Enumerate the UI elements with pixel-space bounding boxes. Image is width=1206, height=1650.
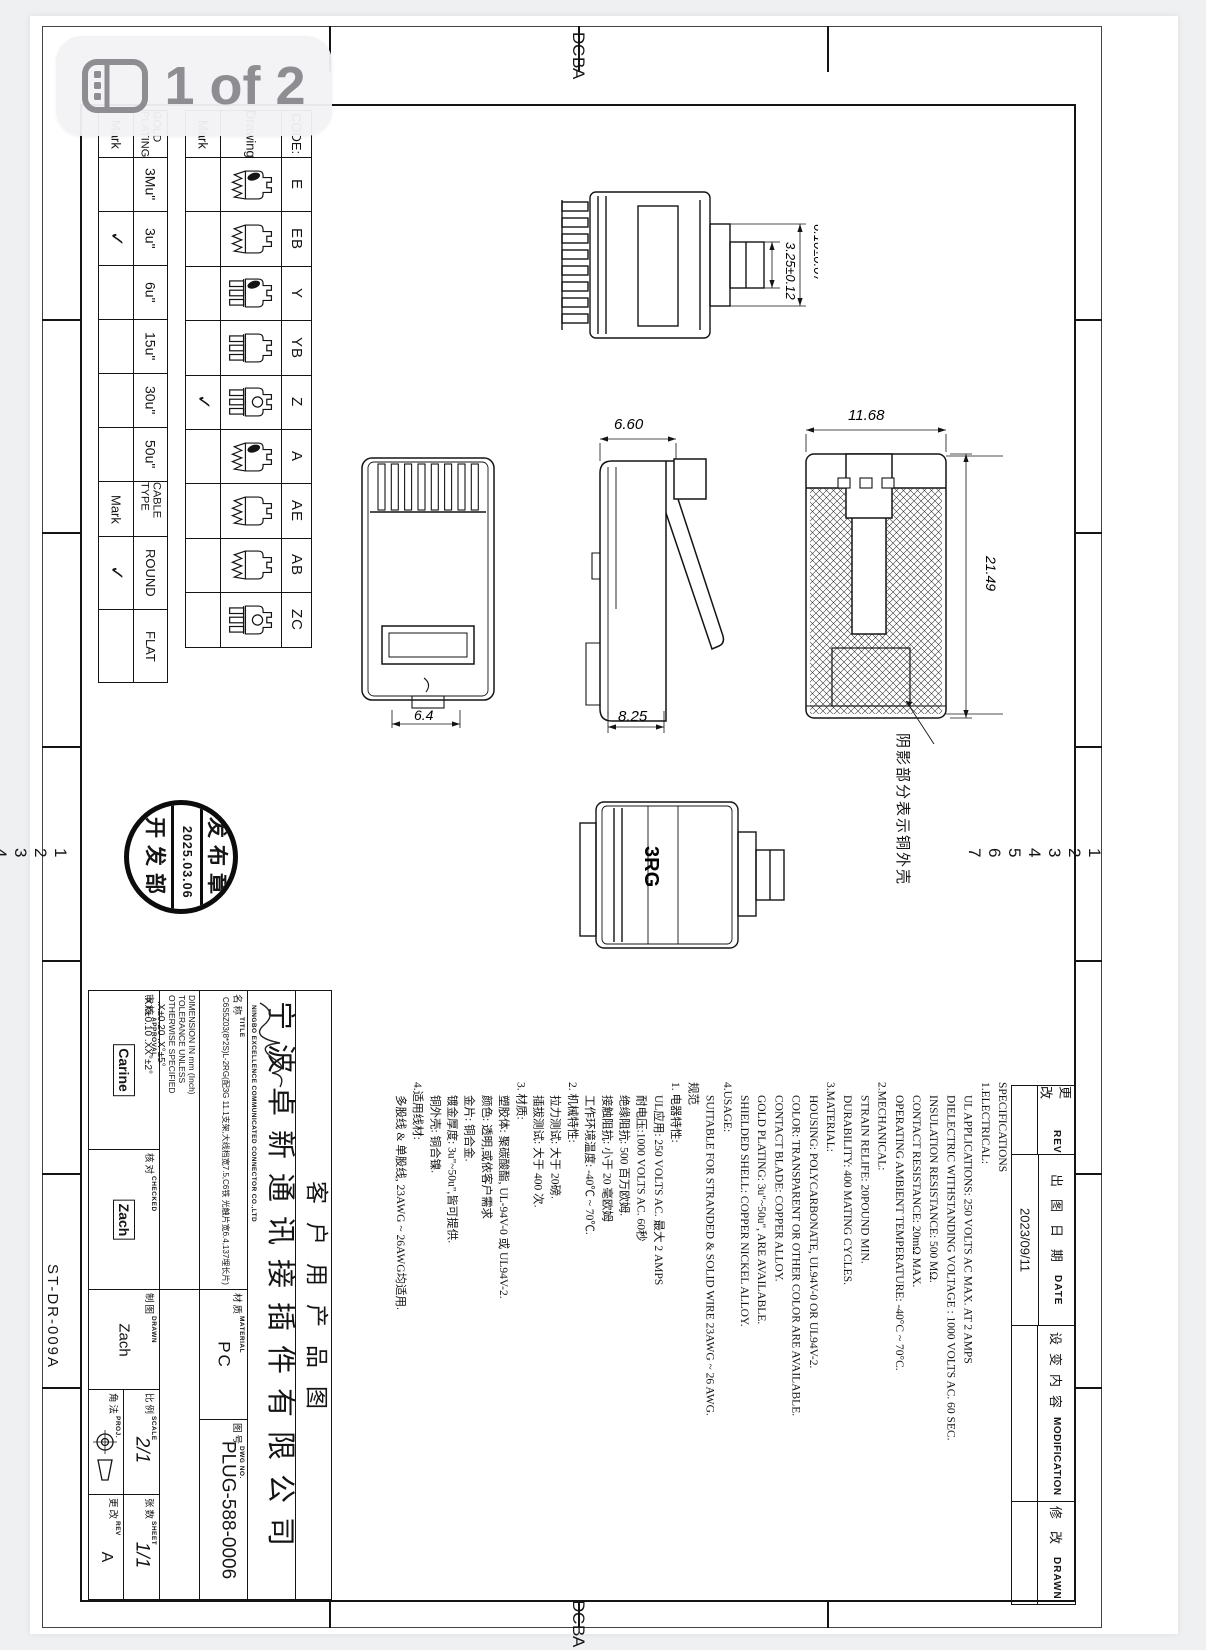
company-cell: 宁波卓新通讯接插件有限公司 NINGBO EXCELLENCE COMMUNIC…	[248, 990, 296, 1600]
tolerance-line2: TOLERANCE UNLESS	[177, 995, 187, 1285]
revision-header-cn: 设变内容	[1047, 1332, 1066, 1416]
code-mark-cell[interactable]	[186, 321, 221, 374]
checked-signature: Zach	[113, 1199, 135, 1240]
dim-rear-width: 11.68	[848, 407, 885, 424]
revision-header-cn: 更改	[1038, 1086, 1076, 1129]
dim-top-large: 6.10±0.07	[811, 224, 818, 283]
company-name-en: NINGBO EXCELLENCE COMMUNICATED CONNECTOR…	[250, 1005, 257, 1595]
code-mark-cell[interactable]	[186, 539, 221, 592]
sheet-cell: 张数SHEET 1/1	[124, 1495, 160, 1600]
code-value: A	[282, 430, 311, 483]
revision-table: 更改REV 2023/09/11 出图日期DATE 设变内容MODIFICATI…	[1011, 1085, 1076, 1605]
plating-row: 3Mu"	[99, 158, 167, 212]
code-value: AB	[282, 539, 311, 592]
spec-line: 3.MATERIAL:	[821, 1082, 838, 1574]
plating-row: ✓ 3u"	[99, 212, 167, 266]
code-value: Z	[282, 376, 311, 429]
rev-cell: 更改REV A	[88, 1495, 124, 1600]
spec-line: 规范	[683, 1082, 700, 1574]
spec-line: 拉力测试: 大于 20磅.	[546, 1082, 563, 1574]
dim-side-depth: 8.25	[618, 708, 648, 725]
spec-line: SPECIFICATIONS	[993, 1082, 1010, 1574]
plating-table: Mark GOLD PLATING 3Mu" ✓ 3u" 6u"	[98, 110, 168, 683]
connector-variant-icon	[221, 593, 282, 646]
drawn-label-en: DRAWN	[143, 1316, 157, 1343]
code-mark-cell[interactable]	[186, 267, 221, 320]
cable-option: FLAT	[134, 610, 168, 682]
revision-header-cn: 出图日期	[1048, 1174, 1067, 1274]
mold-marking: 3RG	[640, 846, 662, 887]
connector-variant-icon	[221, 321, 282, 374]
tolerance-line1: DIMENSION IN mm (Inch)	[187, 995, 197, 1285]
code-mark-cell[interactable]	[186, 212, 221, 265]
dim-top-small: 3.25±0.12	[783, 242, 798, 301]
connector-variant-icon	[221, 158, 282, 211]
spec-line: 耐电压:1000 VOLTS AC. 60秒	[632, 1082, 649, 1574]
view-rear: 11.68 21.49	[788, 396, 1003, 748]
drawn-label-cn: 制图	[143, 1293, 157, 1316]
plating-row: 15u"	[99, 320, 167, 374]
revision-row: 更改REV	[1011, 1085, 1076, 1155]
spec-line: 颜色: 透明,或依客户需求	[477, 1082, 494, 1574]
release-stamp: 2025.03.06 发布章 开发部	[124, 800, 238, 914]
proj-label-cn: 角法	[107, 1393, 121, 1416]
spec-line: 镀金厚度: 3u"~50u",皆可提供.	[442, 1082, 459, 1574]
rev-label-en: REV	[107, 1521, 121, 1536]
spec-line: 2. 机械特性:	[563, 1082, 580, 1574]
zone-number: 1	[50, 104, 70, 1602]
cable-row: FLAT	[99, 610, 167, 682]
code-row: YB	[186, 321, 311, 375]
connector-variant-icon	[221, 539, 282, 592]
plating-mark-cell[interactable]	[99, 266, 134, 319]
spec-line: UL应用: 250 VOLTS AC. 最大 2 AMPS	[649, 1082, 666, 1574]
zone-letter: C	[80, 1612, 1076, 1624]
revision-row: 2023/09/11 出图日期DATE	[1011, 1155, 1076, 1326]
page-indicator-badge[interactable]: 1 of 2	[56, 36, 332, 136]
pages-panel-icon	[82, 59, 148, 113]
cable-option: ROUND	[134, 537, 168, 609]
code-mark-cell[interactable]	[186, 430, 221, 483]
plating-mark-cell[interactable]: ✓	[99, 212, 134, 265]
revision-header-en: MODIFICATION	[1051, 1417, 1062, 1496]
title-cell: 名称TITLE C6S5Z03(8*2S)L-2RG(配3G 11.1支架,大线…	[200, 990, 248, 1290]
spec-line: SHIELDED SHELL: COPPER NICKEL ALLOY.	[735, 1082, 752, 1574]
material-value: PC	[214, 1341, 234, 1369]
code-row: ✓	[186, 376, 311, 430]
dim-rear-height: 21.49	[983, 555, 999, 591]
projection-symbol-icon	[92, 1430, 118, 1488]
spec-line: UL APPLICATIONS: 250 VOLTS AC MAX. AT 2 …	[958, 1082, 975, 1574]
scale-cell: 比例SCALE 2/1	[124, 1390, 160, 1495]
zone-numbers-right: 1234567	[1082, 104, 1104, 1602]
spec-line: DURABILITY: 400 MATING CYCLES.	[838, 1082, 855, 1574]
spec-line: 塑胶体: 聚碳酸酯, UL-94V-0 或 UL94V-2.	[494, 1082, 511, 1574]
zone-numbers-left: 1234567	[48, 104, 70, 1602]
tolerance-cell: DIMENSION IN mm (Inch) TOLERANCE UNLESS …	[160, 990, 200, 1290]
code-mark-cell[interactable]: ✓	[186, 376, 221, 429]
spec-line: 1. 电器特性:	[666, 1082, 683, 1574]
revision-header-en: DATE	[1052, 1275, 1063, 1305]
dwg-no-cell: 图号DWG NO. PLUG-588-0006	[200, 1420, 248, 1600]
plating-option: 15u"	[134, 320, 168, 373]
zone-letter: B	[80, 1625, 1076, 1636]
tolerance-line3: OTHERWISE SPECIFIED	[167, 995, 177, 1285]
form-number: ST-DR-009A	[44, 1264, 61, 1369]
spec-line: COLOR: TRANSPARENT OR OTHER COLOR ARE AV…	[786, 1082, 803, 1574]
connector-variant-icon	[221, 484, 282, 537]
approval-signature: Carine	[113, 1044, 135, 1096]
cable-mark-cell[interactable]	[99, 610, 134, 682]
revision-row: 修改DRAWN	[1011, 1502, 1076, 1605]
zone-number: 4	[0, 104, 10, 1602]
zone-letters-bottom: DCBA	[80, 1600, 1076, 1628]
drawn-signature: Zach	[116, 1323, 133, 1356]
revision-header-en: DRAWN	[1051, 1557, 1062, 1600]
zone-letter: D	[80, 1600, 1076, 1612]
spec-line: OPERATING AMBIENT TEMPERATURE: -40°C ~ 7…	[890, 1082, 907, 1574]
spec-line: 4.适用线材:	[408, 1082, 425, 1574]
customer-drawing-cell: 客户用产品图	[296, 990, 332, 1600]
spec-line: 接触阻抗: 小于 20 毫欧姆	[597, 1082, 614, 1574]
code-value: AE	[282, 484, 311, 537]
code-row: EB	[186, 212, 311, 266]
code-mark-cell[interactable]	[186, 593, 221, 646]
plating-row: 30u"	[99, 374, 167, 428]
code-row: E	[186, 158, 311, 212]
spec-line: SUITABLE FOR STRANDED & SOLID WIRE 23AWG…	[700, 1082, 717, 1574]
spec-line: DIELECTRIC WITHSTANDING VOLTAGE : 1000 V…	[941, 1082, 958, 1574]
handwritten-signature	[252, 995, 294, 1091]
stamp-top-text: 发布章	[203, 817, 233, 901]
code-table: Mark Drawing CODE:	[185, 110, 312, 648]
cable-row: ✓ ROUND	[99, 537, 167, 610]
connector-variant-icon	[221, 267, 282, 320]
plating-option: 30u"	[134, 374, 168, 427]
stamp-date-band: 2025.03.06	[171, 801, 203, 914]
spec-line: HOUSING: POLYCARBONATE, UL94V-0 OR UL94V…	[804, 1082, 821, 1574]
connector-variant-icon	[221, 376, 282, 429]
code-row: ZC	[186, 593, 311, 646]
code-row: AE	[186, 484, 311, 538]
revision-header-en: REV	[1051, 1130, 1062, 1154]
revision-value	[1012, 1502, 1038, 1604]
spec-line: 4.USAGE:	[718, 1082, 735, 1574]
stamp-bottom-text: 开发部	[141, 817, 171, 901]
spec-line: 绝缘阻抗: 500 百万欧姆.	[614, 1082, 631, 1574]
revision-value	[1012, 1326, 1038, 1501]
zone-letter: A	[80, 1636, 1076, 1647]
spec-line: 铜外壳: 铜合镍.	[425, 1082, 442, 1574]
drawn-cell: 制图DRAWN Zach	[88, 1290, 160, 1390]
zone-number: 2	[30, 104, 50, 1602]
zone-number: 1	[1084, 104, 1104, 1602]
revision-value	[1012, 1086, 1038, 1154]
spec-line: STRAIN RELIFE: 20POUND MIN.	[855, 1082, 872, 1574]
plating-mark-cell[interactable]	[99, 428, 134, 481]
plating-option: 3Mu"	[134, 158, 168, 211]
spec-line: CONTACT RESISTANCE: 20mΩ MAX.	[907, 1082, 924, 1574]
tolerance-values2: .XX±0.10 .XX°±2°	[141, 995, 154, 1285]
view-side: 6.60 8.25	[578, 403, 743, 735]
material-cell: 材质MATERIAL PC	[200, 1290, 248, 1420]
plating-option: 6u"	[134, 266, 168, 319]
cable-header: CABLE TYPE	[134, 482, 168, 536]
dim-front-width: 6.4	[414, 707, 434, 723]
view-bottom: 3RG	[570, 788, 795, 963]
spec-line: 多股线 & 单股线, 23AWG ~ 26AWG均适用.	[391, 1082, 408, 1574]
shield-note: 阴影部分表示铜外壳	[893, 733, 914, 886]
code-mark-cell[interactable]	[186, 158, 221, 211]
rev-value: A	[97, 1552, 115, 1563]
plating-mark-cell[interactable]	[99, 374, 134, 427]
plating-option: 3u"	[134, 212, 168, 265]
plating-row: 50u"	[99, 428, 167, 481]
scale-label-cn: 比例	[143, 1393, 157, 1416]
title-label-cn: 名称	[231, 994, 245, 1017]
spec-line: CONTACT BLADE: COPPER ALLOY.	[769, 1082, 786, 1574]
sheet-value: 1/1	[131, 1542, 153, 1568]
stamp-date: 2025.03.06	[180, 826, 194, 899]
connector-variant-icon	[221, 430, 282, 483]
scale-value: 2/1	[131, 1437, 153, 1463]
spec-line: 工作环境温度: -40℃ ~ 70℃.	[580, 1082, 597, 1574]
customer-drawing-label: 客户用产品图	[302, 1181, 336, 1427]
code-row: A	[186, 430, 311, 484]
cable-mark-header: Mark	[99, 482, 134, 536]
spec-line: 插拔测试: 大于 400 次.	[528, 1082, 545, 1574]
spec-line: INSULATION RESISTANCE: 500 MΩ.	[924, 1082, 941, 1574]
dwg-no-value: PLUG-588-0006	[216, 1440, 238, 1578]
title-label-en: TITLE	[231, 1017, 245, 1038]
plating-option: 50u"	[134, 428, 168, 481]
title-text: C6S5Z03(8*2S)L-2RG(配3G 11.1支架,大线档宽7.5,C6…	[202, 997, 230, 1285]
specifications: SPECIFICATIONS1.ELECTRICAL:UL APPLICATIO…	[388, 1082, 1010, 1574]
spec-line: 1.ELECTRICAL:	[976, 1082, 993, 1574]
code-value: YB	[282, 321, 311, 374]
dim-side-width: 6.60	[614, 416, 644, 433]
tolerance-values1: .X±0.20 .X°±5°	[154, 995, 167, 1285]
view-front: 6.4	[348, 448, 508, 733]
code-mark-cell[interactable]	[186, 484, 221, 537]
cable-mark-cell[interactable]: ✓	[99, 537, 134, 609]
plating-mark-cell[interactable]	[99, 158, 134, 211]
code-row: Y	[186, 267, 311, 321]
connector-variant-icon	[221, 212, 282, 265]
plating-row: 6u"	[99, 266, 167, 320]
code-value: Y	[282, 267, 311, 320]
sheet-label-cn: 张数	[143, 1498, 157, 1521]
title-spare-cell	[160, 1290, 200, 1600]
material-label-cn: 材质	[231, 1293, 245, 1316]
projection-cell: 角法PROJ.	[88, 1390, 124, 1495]
code-value: E	[282, 158, 311, 211]
page-indicator-label: 1 of 2	[164, 55, 305, 117]
zone-number: 3	[10, 104, 30, 1602]
code-value: ZC	[282, 593, 311, 646]
code-row: AB	[186, 539, 311, 593]
rev-label-cn: 更改	[107, 1498, 121, 1521]
plating-mark-cell[interactable]	[99, 320, 134, 373]
view-top: 3.25±0.12 6.10±0.07	[550, 180, 818, 355]
revision-date: 2023/09/11	[1012, 1155, 1039, 1325]
revision-row: 设变内容MODIFICATION	[1011, 1326, 1076, 1502]
spec-line: 2.MECHANICAL:	[872, 1082, 889, 1574]
spec-line: 3. 材质:	[511, 1082, 528, 1574]
code-value: EB	[282, 212, 311, 265]
spec-line: GOLD PLATING: 3u"~50u", ARE AVAILABLE.	[752, 1082, 769, 1574]
revision-header-cn: 修改	[1047, 1506, 1066, 1556]
drawing-page: 1234567 1234567 DCBA DCBA ST-DR-009A Mar…	[0, 0, 1206, 1650]
spec-line: 金片: 铜合金.	[460, 1082, 477, 1574]
